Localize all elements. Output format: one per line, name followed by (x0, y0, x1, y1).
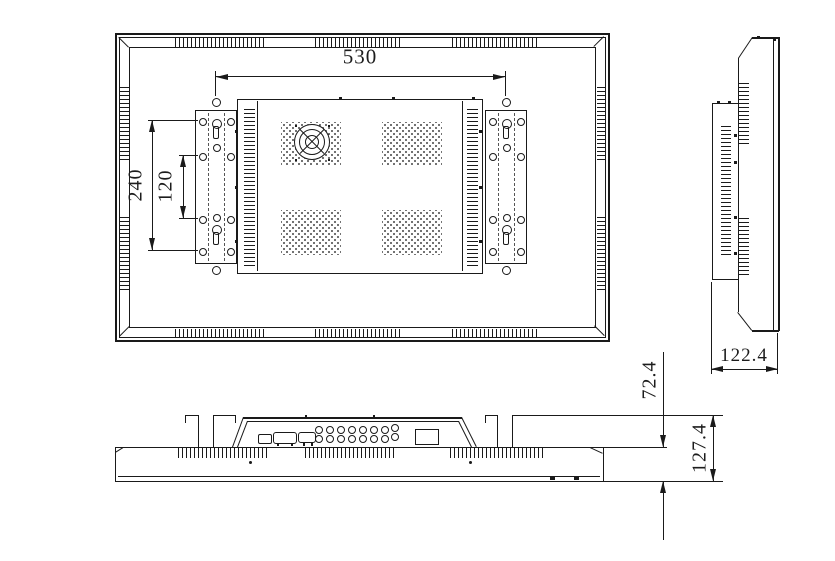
port-screw (311, 443, 313, 446)
screw-mark (235, 186, 238, 189)
edge-mark (574, 477, 579, 480)
screw-mark (728, 101, 731, 103)
extension-line-top (512, 415, 723, 416)
screw-mark (328, 125, 330, 127)
port-screw (277, 443, 279, 446)
plate-vent-slots (721, 125, 731, 255)
bnc-connector (326, 426, 334, 434)
side-body-bottom (752, 330, 779, 332)
tab-line (235, 415, 236, 423)
bnc-connector (381, 435, 389, 443)
trapezoid-slant (237, 421, 248, 447)
side-body-front-inner (773, 37, 774, 330)
dim-label-127-4: 127.4 (689, 423, 712, 473)
technical-drawing: 530 240 120 (0, 0, 835, 561)
edge-mark (550, 477, 555, 480)
dimension-line (663, 352, 664, 447)
screw-mark (235, 130, 238, 133)
screw-mark (734, 252, 737, 255)
dim-label-72-4: 72.4 (639, 361, 662, 400)
tab-line (185, 415, 198, 416)
screw-mark (328, 159, 330, 161)
screw-mark (392, 97, 395, 100)
bnc-connector (370, 435, 378, 443)
screw-mark (774, 39, 776, 41)
side-view: 122.4 (0, 0, 835, 400)
bnc-connector (359, 426, 367, 434)
screw-mark (235, 240, 238, 243)
screw-dot (469, 461, 472, 464)
arrowhead (660, 481, 666, 493)
screw-mark (295, 125, 297, 127)
bnc-connector (315, 426, 323, 434)
bnc-connector (359, 435, 367, 443)
screw-dot (249, 461, 252, 464)
extension-line (711, 282, 712, 374)
tab-line (485, 415, 497, 416)
screw-mark (295, 159, 297, 161)
tab-line (185, 415, 186, 423)
bezel-inner-line (118, 476, 600, 477)
trapezoid-top-inner (247, 421, 459, 422)
bnc-connector (348, 435, 356, 443)
power-inlet (415, 429, 439, 445)
side-chamfer-top (738, 37, 753, 58)
bnc-connector (348, 426, 356, 434)
tab-line (213, 415, 214, 447)
screw-mark (339, 97, 342, 100)
bnc-connector (381, 426, 389, 434)
bnc-connector (370, 426, 378, 434)
tab-line (198, 415, 199, 447)
screw-mark (734, 134, 737, 137)
side-vent-slots (739, 82, 749, 144)
arrowhead (660, 435, 666, 447)
screw-mark (479, 186, 482, 189)
screw-mark (717, 101, 720, 103)
screw-mark (734, 216, 737, 219)
usb-port (258, 434, 272, 444)
bottom-vent-slots (178, 448, 268, 458)
panel-screw (305, 415, 307, 418)
bnc-connector (391, 433, 399, 441)
bottom-vent-slots (450, 448, 545, 458)
panel-screw (373, 415, 375, 418)
dvi-port (298, 432, 316, 443)
bnc-connector (337, 435, 345, 443)
bnc-connector (326, 435, 334, 443)
bottom-vent-slots (305, 448, 395, 458)
bottom-view: 72.4 127.4 (0, 390, 835, 561)
trapezoid-top (243, 417, 462, 419)
screw-mark (479, 130, 482, 133)
extension-line-mid (604, 447, 667, 448)
tab-line (485, 415, 486, 423)
screw-mark (472, 97, 475, 100)
bnc-connector (391, 424, 399, 432)
side-chamfer-bottom (737, 312, 752, 331)
bnc-connector (315, 435, 323, 443)
tab-line (512, 415, 513, 447)
side-body-front (778, 37, 780, 331)
port-screw (291, 443, 293, 446)
side-vent-slots (739, 215, 749, 275)
tab-line (213, 415, 235, 416)
screw-mark (757, 36, 760, 38)
screw-mark (479, 240, 482, 243)
port-screw (303, 443, 305, 446)
tab-line (497, 415, 498, 447)
dim-label-122-4: 122.4 (720, 345, 768, 367)
bnc-connector (337, 426, 345, 434)
screw-mark (734, 161, 737, 164)
